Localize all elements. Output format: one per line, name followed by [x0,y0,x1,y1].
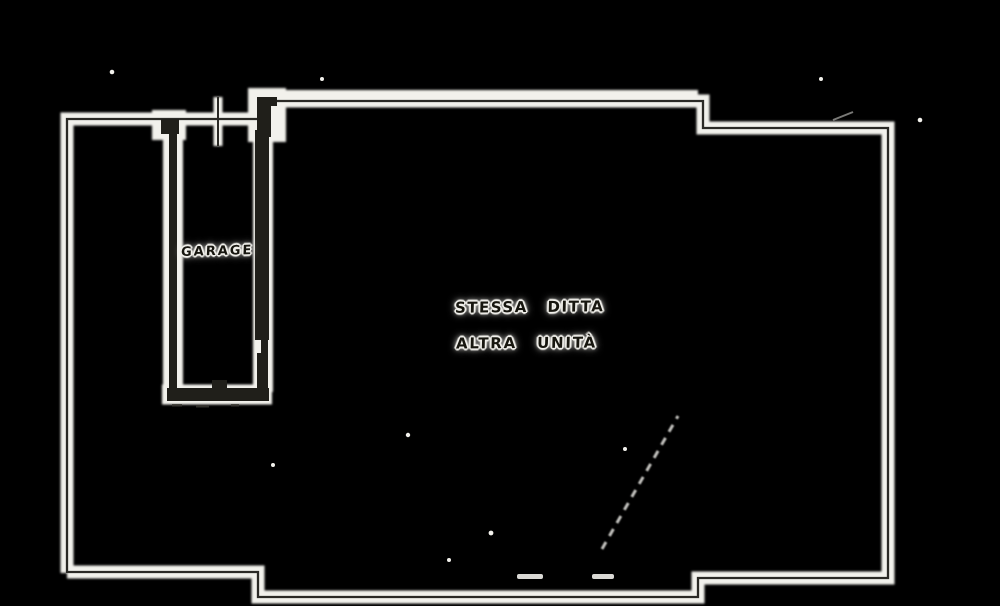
scan-speck [819,77,823,81]
scan-speck [320,77,324,81]
scan-speck [489,531,494,536]
garage-left-wall [169,127,177,392]
scan-noise-layer [110,70,923,579]
garage-right-wall-upper [255,130,269,340]
scan-speck [918,118,923,123]
scan-speck [623,447,627,451]
annotation-stessa-ditta: STESSA DITTA [455,297,605,317]
scanned-floor-plan: GARAGE STESSA DITTA ALTRA UNITÀ [0,0,1000,606]
scan-speck [271,463,275,467]
scan-smudge [592,574,614,579]
garage-door-threshold-notch [212,380,227,389]
diagonal-scratch [602,416,678,549]
garage-bottom-wall [167,388,269,401]
garage-right-wall-doorway-jamb [261,340,268,353]
annotation-altra-unita: ALTRA UNITÀ [456,334,598,353]
garage-right-wall-lower [257,353,268,389]
ink-fleck [196,405,209,408]
top-wall-halo-strip [268,90,698,99]
scan-speck [110,70,115,75]
scan-smudge [517,574,543,579]
scan-speck [406,433,410,437]
small-scratch [833,112,853,120]
scan-ink-flecks [172,404,239,408]
ink-fleck [172,404,182,407]
scan-speck [447,558,451,562]
garage-room-label: GARAGE [181,243,254,260]
ink-fleck [231,404,239,407]
